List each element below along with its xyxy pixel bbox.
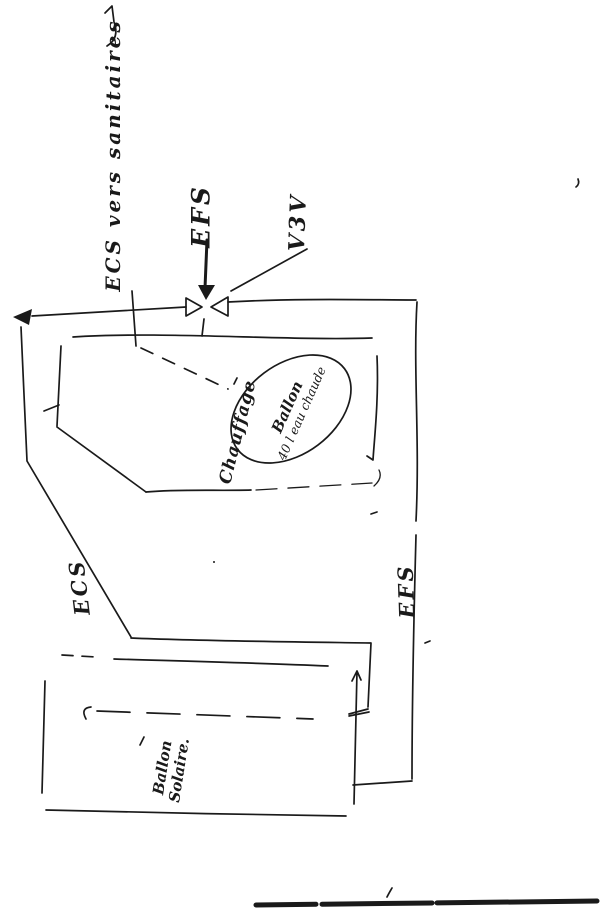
pipe-efs-right-vertical xyxy=(412,302,417,779)
speckle-dot xyxy=(213,561,215,563)
room-bottom-edge xyxy=(146,490,251,492)
pipe-ecs-left xyxy=(32,307,186,316)
sketch-page: ECS vers sanitaires EFS V3V ECS EFS Chau… xyxy=(0,0,600,908)
room-left-tick xyxy=(44,405,59,411)
room-right-edge xyxy=(367,356,377,460)
room-bottom-dashed-edge xyxy=(256,483,372,490)
valve-lower-tick xyxy=(202,319,204,336)
room-diagonal-edge xyxy=(57,427,146,492)
lower-rect-top-upper-line xyxy=(131,638,371,714)
dash-end-tick xyxy=(234,378,237,384)
room-bottom-curl xyxy=(374,470,380,486)
pipe-left-arrowhead-icon xyxy=(13,309,32,325)
speckle-apostrophe-top-right xyxy=(576,179,579,187)
room-top-edge xyxy=(73,335,372,339)
speckle-dash-mid xyxy=(371,512,377,514)
lower-rect-top-lower-line xyxy=(114,659,328,666)
ecs-tap-line xyxy=(132,291,136,346)
label-ecs-vers-sanitaires: ECS vers sanitaires xyxy=(101,18,125,291)
room-left-edge xyxy=(57,346,61,426)
speckle-dash-right xyxy=(425,641,430,643)
lower-rect-top-lower-dashes xyxy=(62,655,96,657)
speckle-apostrophe-bottom xyxy=(387,888,392,897)
valve-to-tank-dashed-line xyxy=(141,348,228,389)
scan-edge-bottom xyxy=(256,901,600,905)
lower-rect-bottom-edge xyxy=(46,810,346,816)
lower-rect-inner-dash-curl xyxy=(84,707,91,719)
valve-left-triangle-icon xyxy=(186,298,202,316)
pipe-efs-top xyxy=(228,300,416,303)
pipe-efs-bottom-elbow xyxy=(353,781,412,785)
handwriting-mark xyxy=(140,737,144,745)
label-efs-line: EFS xyxy=(393,563,420,619)
lower-rect-inner-dashed-line xyxy=(97,711,313,719)
sketch-strokes xyxy=(0,0,600,908)
efs-arrowhead-icon xyxy=(198,285,215,300)
v3v-pointer-line xyxy=(231,249,307,291)
valve-right-triangle-icon xyxy=(211,297,228,316)
label-v3v: V3V xyxy=(284,192,312,251)
label-efs-supply: EFS xyxy=(187,184,216,248)
lower-rect-left-edge xyxy=(42,681,45,793)
